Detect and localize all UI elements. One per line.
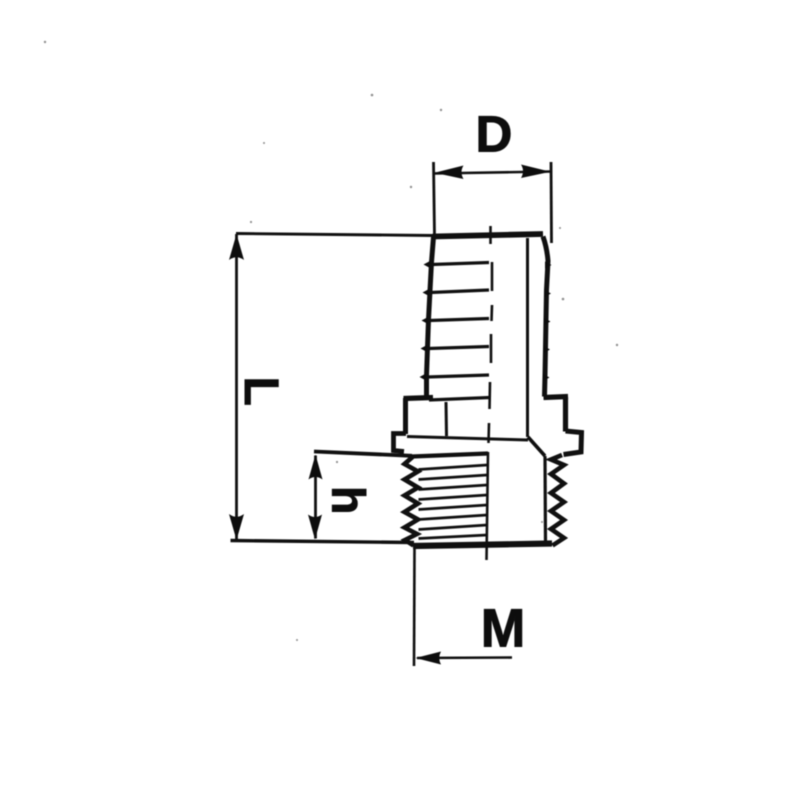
svg-text:L: L [234,377,287,406]
svg-text:h: h [323,486,375,514]
svg-text:D: D [476,106,513,163]
svg-text:M: M [481,600,526,659]
